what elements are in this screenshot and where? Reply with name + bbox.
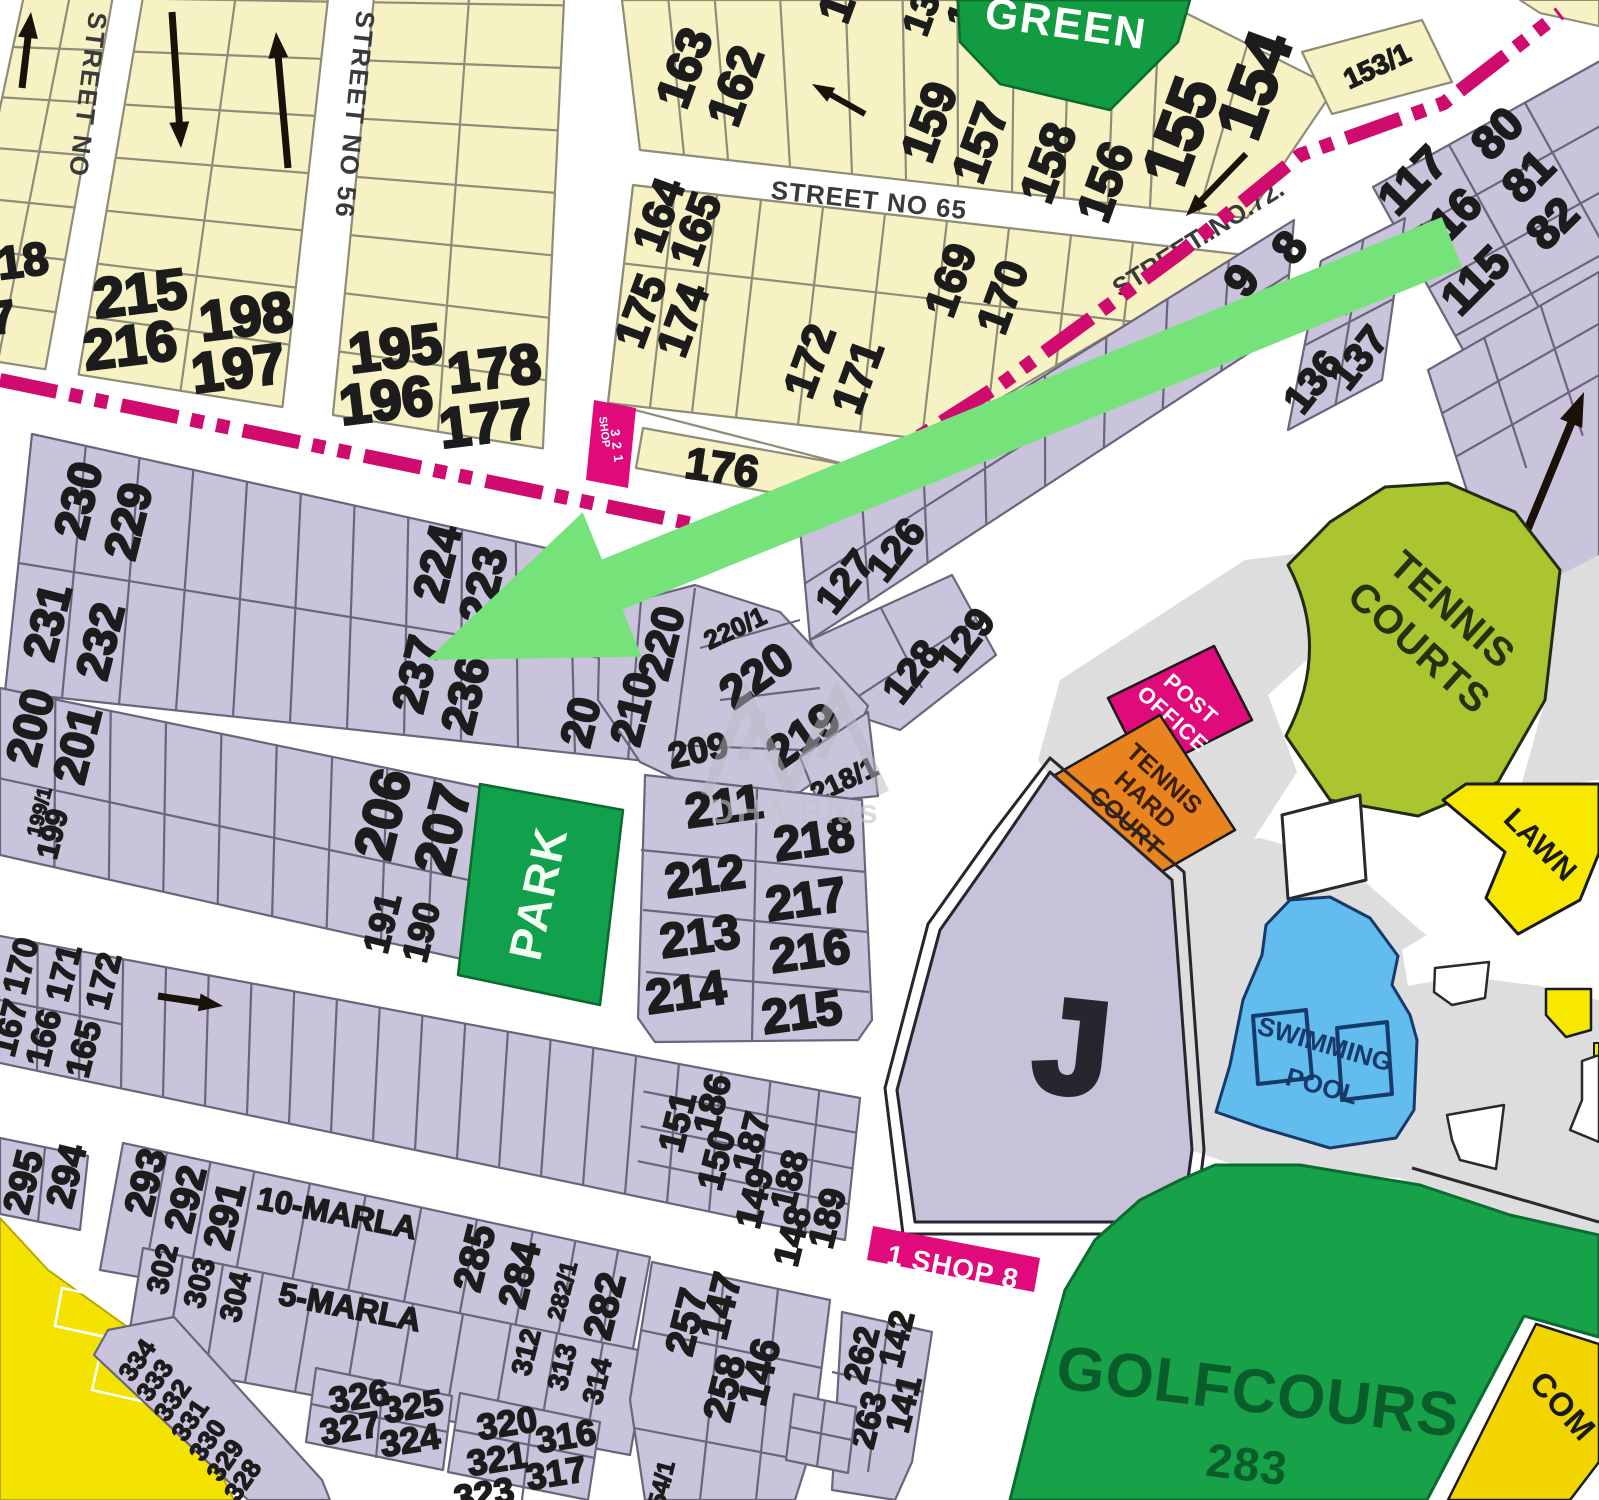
svg-text:DHA Plus: DHA Plus xyxy=(710,793,880,831)
svg-text:283: 283 xyxy=(1203,1433,1290,1496)
svg-text:213: 213 xyxy=(657,905,744,969)
svg-text:176: 176 xyxy=(682,439,762,498)
svg-text:196: 196 xyxy=(336,363,436,437)
svg-text:216: 216 xyxy=(80,308,180,382)
svg-text:218: 218 xyxy=(0,232,51,293)
svg-text:J: J xyxy=(1028,970,1116,1124)
svg-text:214: 214 xyxy=(643,961,730,1025)
svg-text:177: 177 xyxy=(436,386,536,460)
svg-text:216: 216 xyxy=(767,920,854,984)
svg-text:197: 197 xyxy=(188,331,288,405)
svg-text:215: 215 xyxy=(759,981,846,1045)
svg-text:212: 212 xyxy=(662,845,749,909)
